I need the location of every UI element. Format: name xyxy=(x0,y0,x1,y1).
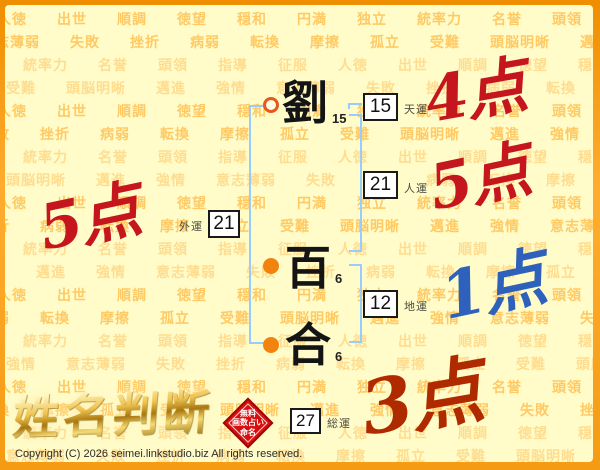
jinun-bracket xyxy=(349,114,362,252)
tenun-label: 天運 xyxy=(404,101,428,117)
name-char-2: 百 xyxy=(285,246,331,292)
soun-value-box: 27 xyxy=(290,408,321,434)
jinun-score: 5点 xyxy=(424,141,533,216)
stroke-count-2: 6 xyxy=(335,271,342,286)
givenname-marker-dot xyxy=(263,337,279,353)
copyright-text: Copyright (C) 2026 seimei.linkstudio.biz… xyxy=(15,448,302,460)
result-canvas: 人徳 出世 順調 徳望 穏和 円満 独立 統率力 名誉 頭領 指導 征服 人徳 … xyxy=(5,5,593,462)
jinun-label: 人運 xyxy=(404,180,428,196)
stroke-count-3: 6 xyxy=(335,349,342,364)
gaiun-score: 5点 xyxy=(34,181,143,256)
gaiun-bracket xyxy=(249,105,268,344)
gaiun-value-box: 21 xyxy=(208,210,240,238)
chiun-bracket xyxy=(349,264,362,343)
gaiun-label: 外運 xyxy=(179,218,203,234)
page-frame: 人徳 出世 順調 徳望 穏和 円満 独立 統率力 名誉 頭領 指導 征服 人徳 … xyxy=(0,0,600,470)
soun-label: 総運 xyxy=(327,415,351,431)
jinun-value-box: 21 xyxy=(363,171,398,199)
seal-line-2: 画数占い xyxy=(232,418,264,428)
stroke-count-1: 15 xyxy=(332,111,346,126)
tenun-value-box: 15 xyxy=(363,93,398,121)
name-char-3: 合 xyxy=(285,323,331,369)
chiun-score: 1点 xyxy=(436,249,548,327)
tenun-bracket xyxy=(348,103,362,109)
soun-score: 3点 xyxy=(356,357,485,443)
tenun-score: 4点 xyxy=(421,57,528,129)
seal-line-1: 無料 xyxy=(240,409,256,419)
name-char-1: 劉 xyxy=(282,81,328,127)
chiun-value-box: 12 xyxy=(363,290,398,318)
givenname-marker-dot xyxy=(263,258,279,274)
chiun-label: 地運 xyxy=(404,298,428,314)
site-logo[interactable]: 姓名判断 xyxy=(11,388,215,444)
seal-line-3: 命名 xyxy=(240,428,256,438)
free-naming-seal: 無料 画数占い 命名 xyxy=(222,397,274,449)
surname-marker-ring xyxy=(263,97,279,113)
seal-text: 無料 画数占い 命名 xyxy=(222,397,274,449)
